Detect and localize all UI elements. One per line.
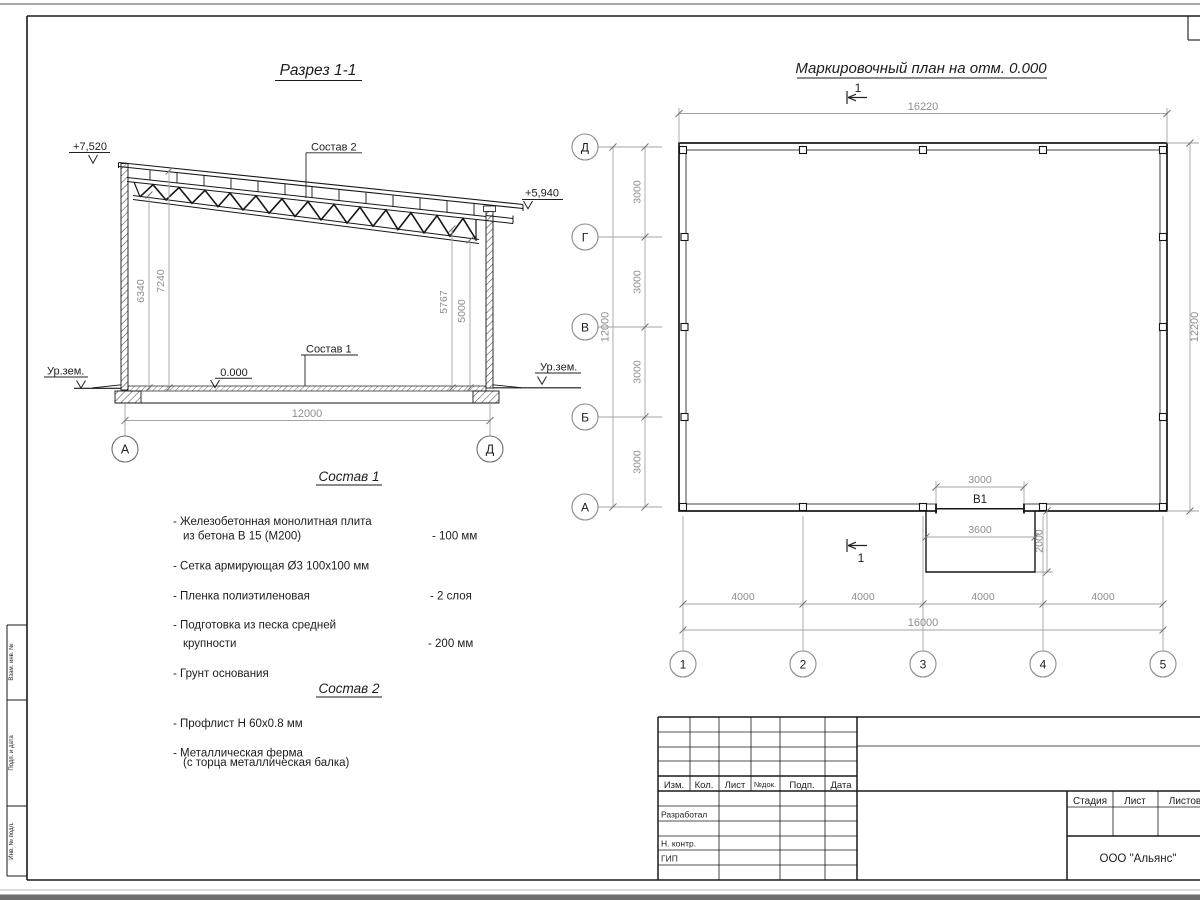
dim-16220: 16220 xyxy=(908,101,939,113)
tb-stage-stadia: Стадия xyxy=(1073,796,1107,807)
dim-6340: 6340 xyxy=(135,279,147,303)
section-mark-top: 1 xyxy=(855,81,862,95)
notes-composition2: Состав 2 - Профлист Н 60х0.8 мм - Металл… xyxy=(173,681,382,769)
dim-12200: 12200 xyxy=(1189,312,1200,343)
callout-floor-label: Состав 1 xyxy=(306,344,352,356)
section-axis-d: Д xyxy=(486,443,495,457)
dim-3000-row: 3000 xyxy=(632,360,644,384)
section-mark-bottom: 1 xyxy=(858,551,865,565)
dim-porch-2000: 2000 xyxy=(1034,529,1046,553)
plan-dimensions xyxy=(598,108,1199,651)
note-item: - Железобетонная монолитная плита xyxy=(173,516,372,528)
margin-label-podp: Подп. и дата xyxy=(9,735,15,771)
axis-row-d: Д xyxy=(581,141,589,155)
tb-header-list: Лист xyxy=(725,780,746,791)
tb-header-izm: Изм. xyxy=(664,780,684,791)
dim-7240: 7240 xyxy=(155,269,167,293)
note-value: - 100 мм xyxy=(432,531,477,543)
ground-label-left: Ур.зем. xyxy=(47,366,84,378)
axis-col-1: 1 xyxy=(680,658,687,672)
tb-header-ndok: №док. xyxy=(754,780,776,789)
axis-col-4: 4 xyxy=(1040,658,1047,672)
margin-label-vzam: Взам. инв. № xyxy=(8,643,15,680)
dim-5000: 5000 xyxy=(456,299,468,323)
callout-roof-label: Состав 2 xyxy=(311,142,357,154)
level-floor: 0.000 xyxy=(220,367,248,379)
axis-row-v: В xyxy=(581,321,589,335)
section-axis-bubbles: А Д xyxy=(112,436,503,462)
tb-stage-list: Лист xyxy=(1124,796,1146,807)
section-title: Разрез 1-1 xyxy=(280,62,357,79)
note-item: - Пленка полиэтиленовая xyxy=(173,591,310,603)
note-item: - Профлист Н 60х0.8 мм xyxy=(173,718,303,730)
sheet-frame xyxy=(0,4,1200,900)
tb-role-razrabotal: Разработал xyxy=(661,810,707,820)
composition2-title: Состав 2 xyxy=(319,681,380,696)
note-item: - Подготовка из песка средней xyxy=(173,620,336,632)
dim-12000-plan: 12000 xyxy=(600,312,612,343)
drawing-sheet: Взам. инв. № Подп. и дата Инв. № подл. Р… xyxy=(0,0,1200,900)
axis-row-a: А xyxy=(581,501,589,515)
dim-4000: 4000 xyxy=(971,591,995,603)
plan-section-marks xyxy=(847,91,867,552)
section-view: Разрез 1-1 xyxy=(44,62,581,462)
notes-composition1: Состав 1 - Железобетонная монолитная пли… xyxy=(173,469,477,680)
level-top-left: +7,520 xyxy=(73,141,107,153)
dim-opening-3000: 3000 xyxy=(968,474,992,486)
tb-role-nkontr: Н. контр. xyxy=(661,839,696,849)
plan-view: Маркировочный план на отм. 0.000 xyxy=(572,60,1200,677)
margin-label-inv: Инв. № подл. xyxy=(8,822,15,860)
tb-header-kol: Кол. xyxy=(695,780,714,791)
note-item: - Сетка армирующая Ø3 100х100 мм xyxy=(173,561,369,573)
ground-label-right: Ур.зем. xyxy=(540,362,577,374)
note-value: - 2 слоя xyxy=(430,591,472,603)
dim-4000: 4000 xyxy=(1091,591,1115,603)
note-item: - Грунт основания xyxy=(173,668,269,680)
title-block: Изм. Кол. Лист №док. Подп. Дата Разработ… xyxy=(658,717,1200,880)
dim-4000: 4000 xyxy=(731,591,755,603)
tb-header-data: Дата xyxy=(830,780,852,791)
axis-col-3: 3 xyxy=(920,658,927,672)
axis-col-2: 2 xyxy=(800,658,807,672)
axis-col-5: 5 xyxy=(1160,658,1167,672)
dim-span-12000: 12000 xyxy=(292,408,323,420)
plan-title: Маркировочный план на отм. 0.000 xyxy=(795,60,1047,77)
section-axis-a: А xyxy=(121,443,130,457)
note-item: крупности xyxy=(183,638,236,650)
note-item: (с торца металлическая балка) xyxy=(183,757,350,769)
margin-labels: Взам. инв. № Подп. и дата Инв. № подл. xyxy=(8,643,15,859)
tb-role-gip: ГИП xyxy=(661,854,678,864)
porch-outline xyxy=(926,511,1035,572)
note-value: - 200 мм xyxy=(428,638,473,650)
section-structure xyxy=(74,163,581,404)
level-top-right: +5,940 xyxy=(525,188,559,200)
dim-porch-3600: 3600 xyxy=(968,524,992,536)
tb-company: ООО "Альянс" xyxy=(1100,853,1177,865)
dim-4000: 4000 xyxy=(851,591,875,603)
tb-stage-listov: Листов xyxy=(1169,796,1200,807)
note-item: из бетона В 15 (М200) xyxy=(183,531,301,543)
opening-label-b1: В1 xyxy=(973,494,987,506)
dim-5767: 5767 xyxy=(438,290,450,314)
dim-3000-row: 3000 xyxy=(632,270,644,294)
axis-row-g: Г xyxy=(582,231,589,245)
plan-walls xyxy=(679,143,1167,572)
composition1-title: Состав 1 xyxy=(319,469,380,484)
axis-row-b: Б xyxy=(581,411,589,425)
drawing-canvas: Взам. инв. № Подп. и дата Инв. № подл. Р… xyxy=(0,0,1200,900)
tb-header-podp: Подп. xyxy=(789,780,814,791)
dim-3000-row: 3000 xyxy=(632,450,644,474)
dim-16000: 16000 xyxy=(908,617,939,629)
dim-3000-row: 3000 xyxy=(632,180,644,204)
